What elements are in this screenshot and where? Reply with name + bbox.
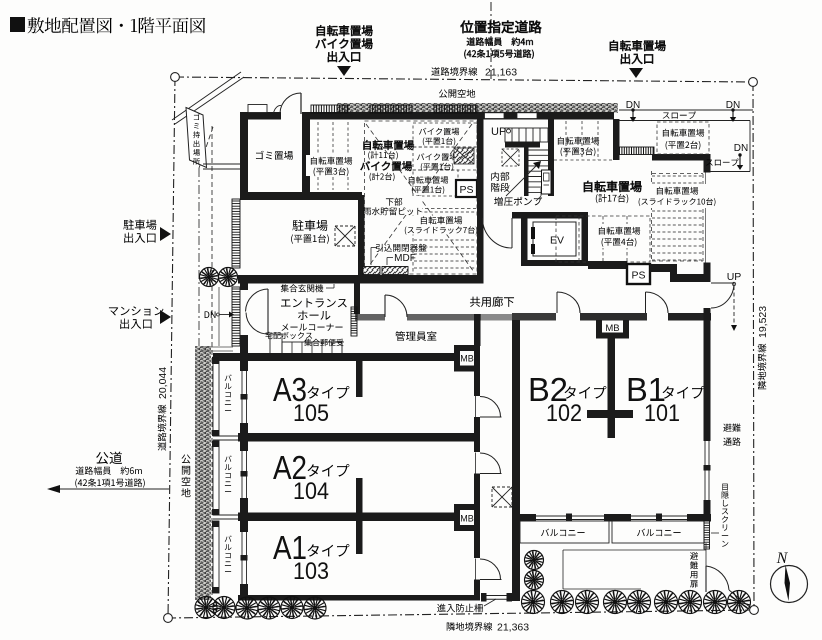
svg-text:UP: UP xyxy=(727,271,742,283)
svg-text:19,523: 19,523 xyxy=(757,306,769,338)
svg-text:DN: DN xyxy=(734,143,748,154)
svg-text:MDF: MDF xyxy=(394,253,416,264)
svg-text:104: 104 xyxy=(293,478,329,505)
svg-text:105: 105 xyxy=(293,400,329,427)
svg-text:101: 101 xyxy=(644,400,680,427)
svg-text:MB: MB xyxy=(460,514,474,524)
svg-text:MB: MB xyxy=(460,354,474,364)
svg-text:20,044: 20,044 xyxy=(157,367,169,399)
svg-text:PS: PS xyxy=(631,270,645,282)
svg-text:PS: PS xyxy=(459,184,473,196)
svg-text:MB: MB xyxy=(605,323,619,334)
svg-text:21,163: 21,163 xyxy=(485,67,517,79)
svg-text:102: 102 xyxy=(546,400,582,427)
svg-text:EV: EV xyxy=(550,235,564,247)
svg-text:UP: UP xyxy=(491,126,506,138)
svg-text:N: N xyxy=(776,550,789,567)
svg-text:21,363: 21,363 xyxy=(497,622,529,634)
svg-text:103: 103 xyxy=(293,558,329,585)
